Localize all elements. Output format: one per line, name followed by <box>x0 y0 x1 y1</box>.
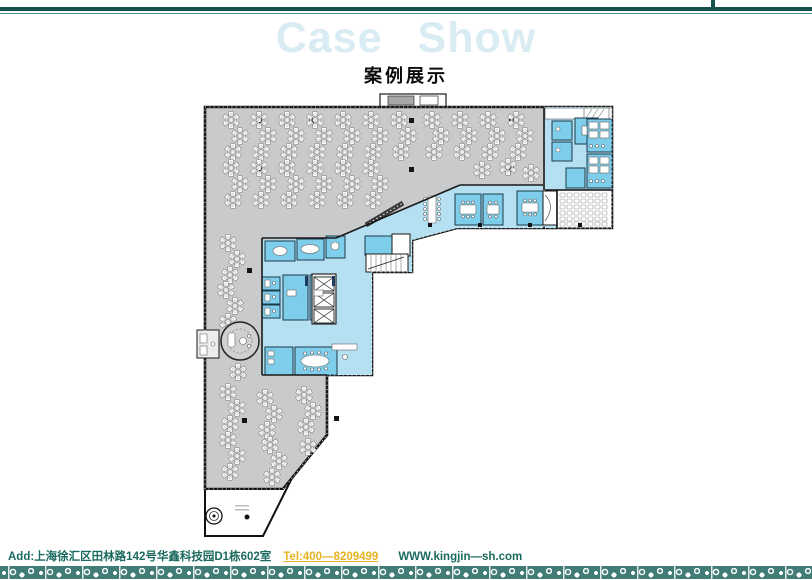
floor-plan-svg <box>0 0 812 580</box>
footer-phone-link[interactable]: Tel:400—8209499 <box>283 551 378 563</box>
bottom-decorative-strip <box>0 566 812 579</box>
service-strip <box>545 108 612 119</box>
footer-address: Add:上海徐汇区田林路142号华鑫科技园D1栋602室 <box>8 551 271 563</box>
floor-plan <box>0 0 812 580</box>
slide: Case Show 案例展示 <box>0 0 812 580</box>
footer: Add:上海徐汇区田林路142号华鑫科技园D1栋602室Tel:400—8209… <box>8 548 808 564</box>
footer-website: WWW.kingjin—sh.com <box>398 551 522 563</box>
